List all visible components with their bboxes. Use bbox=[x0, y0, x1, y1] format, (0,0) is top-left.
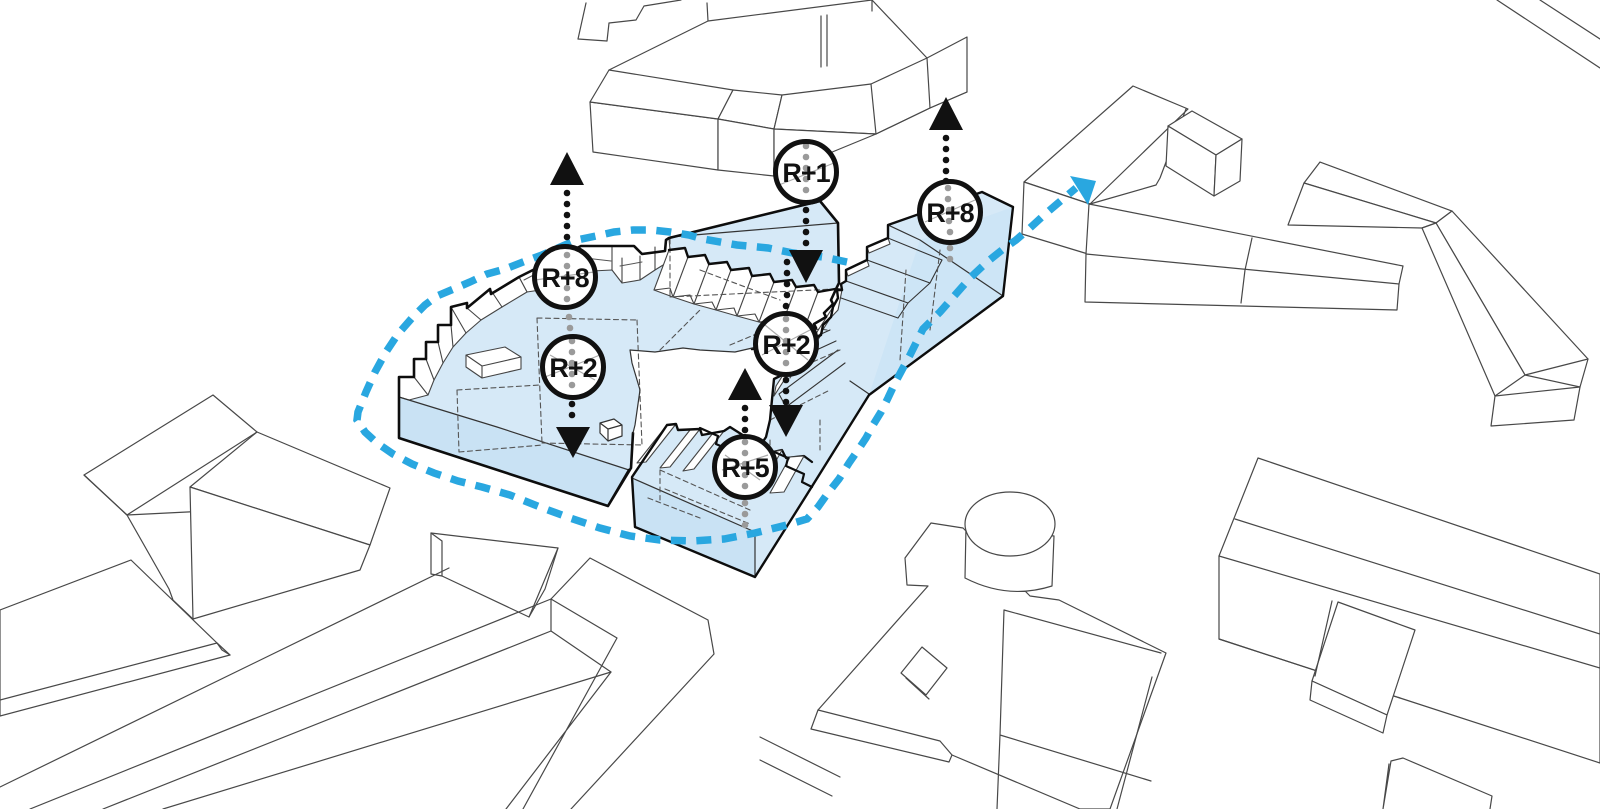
svg-text:R+2: R+2 bbox=[549, 353, 596, 383]
svg-text:R+5: R+5 bbox=[721, 453, 769, 483]
svg-text:R+8: R+8 bbox=[541, 263, 589, 293]
svg-text:R+1: R+1 bbox=[782, 158, 830, 188]
svg-text:R+8: R+8 bbox=[926, 198, 974, 228]
svg-text:R+2: R+2 bbox=[762, 330, 809, 360]
